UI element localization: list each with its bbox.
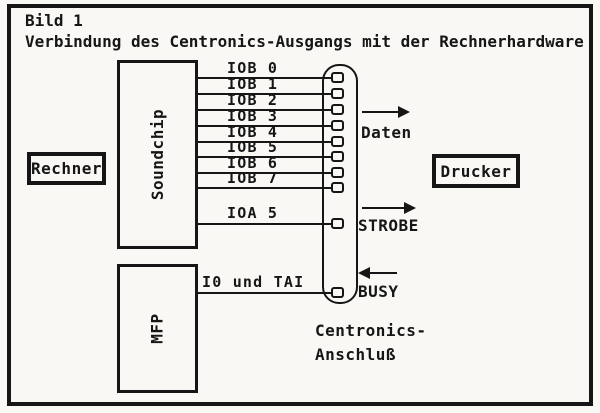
page-title: Bild 1 Verbindung des Centronics-Ausgang… (25, 10, 584, 52)
page-frame (7, 4, 593, 406)
data-wire-label: IOB 7 (227, 171, 278, 186)
connector-pin-strobe (331, 218, 344, 229)
busy-label: BUSY (358, 284, 399, 300)
connector-caption-line2: Anschluß (315, 343, 426, 367)
connector-pin (331, 182, 344, 193)
connector-caption-line1: Centronics- (315, 319, 426, 343)
connector-caption: Centronics- Anschluß (315, 319, 426, 367)
connector-pin (331, 151, 344, 162)
connector-pin (331, 120, 344, 131)
title-line2: Verbindung des Centronics-Ausgangs mit d… (25, 31, 584, 52)
rechner-label: Rechner (31, 159, 102, 178)
strobe-arrow-shaft (362, 207, 406, 209)
strobe-arrow-icon (404, 202, 416, 214)
title-line1: Bild 1 (25, 10, 584, 31)
strobe-wire (196, 223, 333, 225)
soundchip-box: Soundchip (117, 60, 198, 249)
data-wire-label: IOB 5 (227, 140, 278, 155)
diagram-page: Bild 1 Verbindung des Centronics-Ausgang… (0, 0, 600, 413)
data-wire-label: IOB 3 (227, 109, 278, 124)
drucker-box: Drucker (432, 154, 520, 188)
data-wire-label: IOB 2 (227, 93, 278, 108)
connector-pin (331, 72, 344, 83)
busy-arrow-shaft (368, 272, 397, 274)
daten-label: Daten (361, 125, 412, 141)
rechner-box: Rechner (27, 152, 106, 185)
connector-pin (331, 167, 344, 178)
soundchip-label: Soundchip (148, 109, 167, 200)
strobe-label: STROBE (358, 218, 419, 234)
busy-wire-label: I0 und TAI (202, 275, 304, 290)
connector-pin (331, 136, 344, 147)
strobe-wire-label: IOA 5 (227, 206, 278, 221)
mfp-box: MFP (117, 264, 198, 393)
connector-pin (331, 104, 344, 115)
busy-wire (196, 292, 333, 294)
daten-arrow-shaft (362, 111, 400, 113)
mfp-label: MFP (148, 313, 167, 343)
daten-arrow-icon (398, 106, 410, 118)
data-wire (196, 187, 333, 189)
drucker-label: Drucker (441, 162, 512, 181)
connector-pin (331, 88, 344, 99)
data-wire-label: IOB 1 (227, 77, 278, 92)
connector-pin-busy (331, 287, 344, 298)
data-wire-label: IOB 0 (227, 61, 278, 76)
